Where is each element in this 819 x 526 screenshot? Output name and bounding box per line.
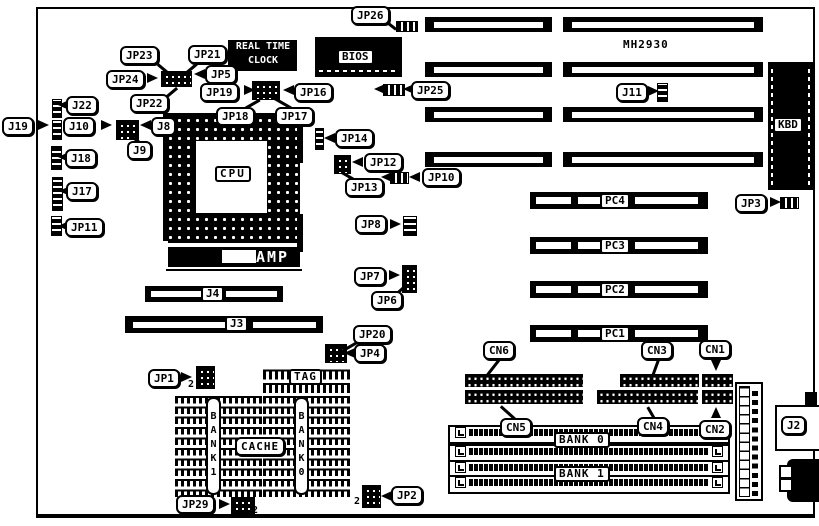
callout-j11: J11 — [616, 83, 648, 102]
callout-jp10: JP10 — [422, 168, 461, 187]
pc4-label: PC4 — [600, 193, 630, 209]
cache-bank1-label: BANK1 — [206, 397, 221, 495]
jp5-leader — [194, 69, 205, 79]
cn2-leader — [711, 407, 721, 418]
j10-leader — [101, 120, 112, 130]
socket-base-line2 — [166, 269, 302, 271]
jp14-leader — [324, 133, 335, 143]
callout-cn2: CN2 — [699, 420, 731, 439]
j3-stripe-right — [253, 322, 316, 328]
jp10-leader — [409, 172, 420, 182]
j11-leader — [648, 86, 659, 96]
jp3-connector — [780, 197, 799, 209]
callout-j22: J22 — [66, 96, 98, 115]
cn5-header — [465, 390, 583, 404]
j19-leader — [38, 120, 49, 130]
cn6-header — [465, 374, 583, 387]
kbd-dash-right — [808, 67, 810, 185]
jp29-leader — [219, 499, 230, 509]
j3-label: J3 — [225, 316, 248, 332]
callout-j19: J19 — [2, 117, 34, 136]
j3-stripe-left — [133, 322, 226, 328]
motherboard-diagram: MH2930 KBD REAL TIME CLOCK BIOS JP26 JP2… — [0, 0, 819, 526]
amp-key-slot — [222, 250, 256, 263]
jp26-jumper — [396, 21, 418, 32]
rear-port-stub — [805, 392, 817, 406]
cn1-leader — [711, 360, 721, 371]
callout-jp23: JP23 — [120, 46, 159, 65]
kbd-label: KBD — [773, 117, 803, 133]
callout-jp5: JP5 — [205, 65, 237, 84]
isa-slot-1-right — [563, 17, 763, 32]
board-edge-top — [36, 7, 815, 9]
isa-slot-4-right — [563, 152, 763, 167]
callout-cn6: CN6 — [483, 341, 515, 360]
rtc-label-line1: REAL TIME — [230, 41, 296, 52]
callout-jp8: JP8 — [355, 215, 387, 234]
rtc-label-line2: CLOCK — [230, 55, 296, 66]
callout-jp25: JP25 — [411, 81, 450, 100]
jp2-jumper — [362, 485, 381, 508]
pc2-label: PC2 — [600, 282, 630, 298]
callout-cn5: CN5 — [500, 418, 532, 437]
j19-connector — [52, 120, 62, 140]
cn3-header — [620, 374, 699, 387]
callout-jp22: JP22 — [130, 94, 169, 113]
pc3-label: PC3 — [600, 238, 630, 254]
callout-jp16: JP16 — [294, 83, 333, 102]
callout-j18: J18 — [65, 149, 97, 168]
bios-dashed-line — [319, 70, 398, 72]
cn4-header — [597, 390, 698, 404]
jp19-leader — [244, 85, 255, 95]
isa-slot-3-right — [563, 107, 763, 122]
callout-j2: J2 — [781, 416, 806, 435]
jp16-leader — [283, 85, 294, 95]
cn2-header — [702, 390, 733, 404]
tag-label: TAG — [289, 369, 322, 385]
callout-jp18: JP18 — [216, 107, 255, 126]
isa-slot-1-left — [425, 17, 552, 32]
isa-slot-4-left — [425, 152, 552, 167]
zif-rail-top — [297, 126, 303, 163]
board-edge-bottom — [36, 514, 815, 518]
callout-cn1: CN1 — [699, 340, 731, 359]
isa-slot-3-left — [425, 107, 552, 122]
jp8-leader — [390, 219, 401, 229]
jp1-jumper — [196, 366, 215, 389]
jp7-leader — [389, 270, 400, 280]
pc1-label: PC1 — [600, 326, 630, 342]
cpu-label: CPU — [215, 166, 251, 182]
callout-jp24: JP24 — [106, 70, 145, 89]
callout-jp12: JP12 — [364, 153, 403, 172]
callout-jp17: JP17 — [275, 107, 314, 126]
power-connector — [735, 382, 763, 501]
board-model: MH2930 — [623, 38, 669, 51]
callout-jp2: JP2 — [391, 486, 423, 505]
callout-jp13: JP13 — [345, 178, 384, 197]
callout-jp6: JP6 — [371, 291, 403, 310]
callout-j8: J8 — [151, 117, 176, 136]
j4-stripe-left — [151, 291, 203, 297]
jp14-connector — [315, 128, 324, 150]
isa-slot-2-right — [563, 62, 763, 77]
board-edge-left — [36, 7, 38, 517]
callout-jp3: JP3 — [735, 194, 767, 213]
din-notch-2 — [779, 478, 793, 492]
socket-base-line1 — [168, 241, 298, 243]
jp1-pin2-marker: 2 — [188, 379, 194, 390]
callout-jp19: JP19 — [200, 83, 239, 102]
jp7-jp6-jumper-block — [402, 265, 417, 293]
bank0-label: BANK 0 — [554, 432, 610, 448]
j3-connector-bar — [125, 316, 323, 333]
callout-jp7: JP7 — [354, 267, 386, 286]
callout-jp21: JP21 — [188, 45, 227, 64]
bank1-label: BANK 1 — [554, 466, 610, 482]
j4-stripe-right — [226, 291, 277, 297]
callout-j9: J9 — [127, 141, 152, 160]
callout-jp1: JP1 — [148, 369, 180, 388]
j8-j9-j10-jumper-block — [116, 120, 139, 140]
cache-bank0-label: BANK0 — [294, 397, 309, 495]
isa-slot-2-left — [425, 62, 552, 77]
callout-jp26: JP26 — [351, 6, 390, 25]
jp29-pin2-marker: 2 — [252, 505, 258, 516]
jp25-target-leader — [374, 84, 385, 94]
j8-leader — [140, 120, 151, 130]
callout-jp4: JP4 — [354, 344, 386, 363]
amp-label: AMP — [256, 248, 289, 266]
jp10-connector — [390, 172, 409, 184]
jp2-pin2-marker: 2 — [354, 496, 360, 507]
callout-cn3: CN3 — [641, 341, 673, 360]
cache-label: CACHE — [235, 437, 285, 456]
callout-j17: J17 — [66, 182, 98, 201]
jp25-connector — [383, 84, 405, 96]
j4-label: J4 — [201, 286, 224, 302]
cn1-header — [702, 374, 733, 387]
callout-jp20: JP20 — [353, 325, 392, 344]
jp24-leader — [147, 73, 158, 83]
bios-label: BIOS — [337, 49, 374, 65]
din-notch-1 — [779, 465, 793, 479]
callout-jp14: JP14 — [335, 129, 374, 148]
callout-j10: J10 — [63, 117, 95, 136]
jp12-leader — [352, 157, 363, 167]
callout-cn4: CN4 — [637, 417, 669, 436]
callout-jp29: JP29 — [176, 495, 215, 514]
callout-jp11: JP11 — [65, 218, 104, 237]
jp8-connector — [403, 216, 417, 236]
jp3-leader — [770, 197, 781, 207]
